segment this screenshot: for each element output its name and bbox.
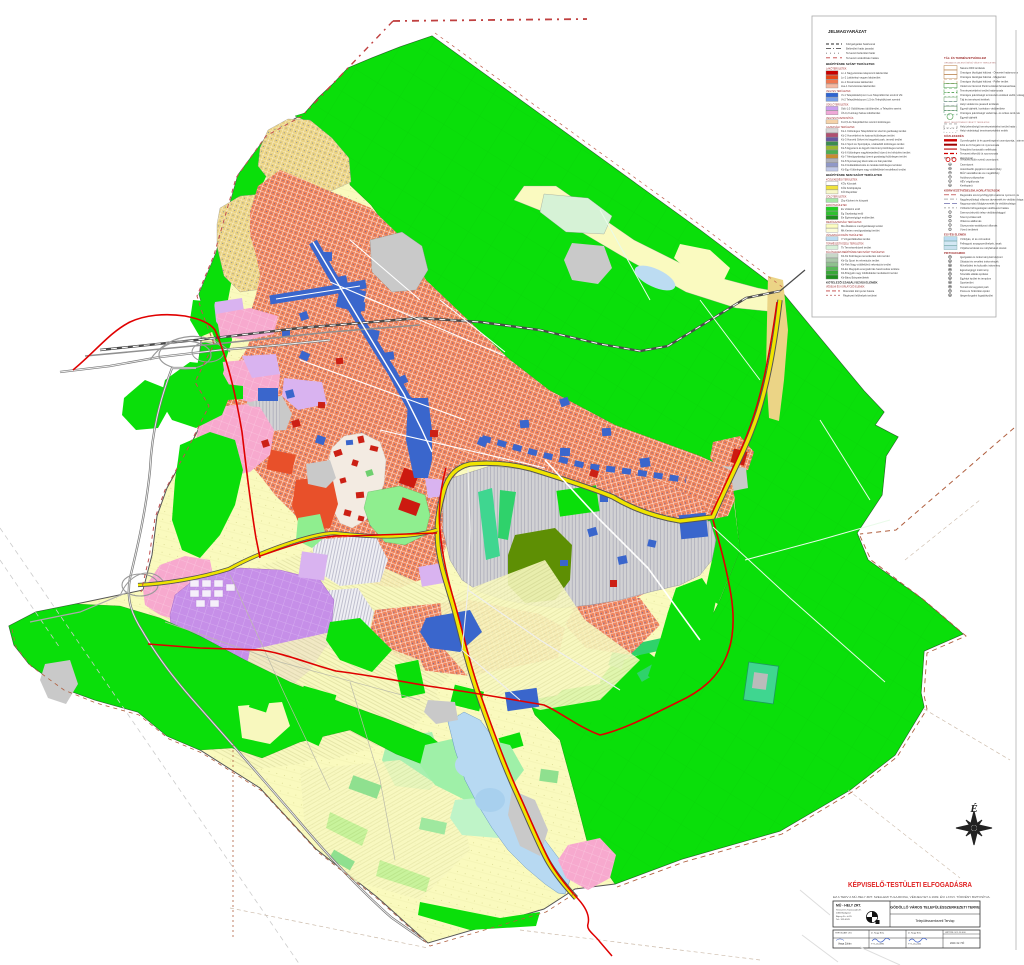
svg-text:TT 1-01-2421: TT 1-01-2421 xyxy=(908,944,922,946)
svg-text:Ee Egészségügyi erdőterület: Ee Egészségügyi erdőterület xyxy=(841,216,874,220)
svg-text:Temető és kegyeleti park: Temető és kegyeleti park xyxy=(960,285,989,289)
svg-text:Üdü-1,0 Üdülőházas üdülőterüle: Üdü-1,0 Üdülőházas üdülőterület, a Telep… xyxy=(841,107,901,111)
svg-text:VEGYES TERÜLETEK: VEGYES TERÜLETEK xyxy=(826,90,851,93)
svg-text:Vízjárta területek és mélyfekv: Vízjárta területek és mélyfekvésű részek xyxy=(960,246,1007,250)
svg-text:Má Általános mezőgazdasági ter: Má Általános mezőgazdasági terület xyxy=(841,224,883,228)
svg-text:EZ A TERV A MŰ-HELY ZRT. SZELL: EZ A TERV A MŰ-HELY ZRT. SZELLEMI TULAJD… xyxy=(833,894,991,899)
svg-text:Jelentősebb gépjármű várakozóh: Jelentősebb gépjármű várakozóhely xyxy=(960,167,1002,171)
svg-text:ZÖLDTERÜLETEK: ZÖLDTERÜLETEK xyxy=(826,195,847,198)
svg-text:Helyi védelemre javasolt terül: Helyi védelemre javasolt területek xyxy=(960,102,999,106)
svg-text:Vízbázis hidrogeológiai védőöv: Vízbázis hidrogeológiai védőövezet határ… xyxy=(960,206,1009,210)
svg-text:Egyedi tájérték: Egyedi tájérték xyxy=(960,116,978,120)
svg-text:Eg Gazdasági erdő: Eg Gazdasági erdő xyxy=(841,211,864,215)
svg-text:Varga Zoltán: Varga Zoltán xyxy=(838,943,852,946)
svg-text:KÖk Kötöttpályás: KÖk Kötöttpályás xyxy=(841,186,862,190)
svg-text:JELMAGYARÁZAT: JELMAGYARÁZAT xyxy=(828,29,867,34)
svg-text:Műemléki környezet határa: Műemléki környezet határa xyxy=(843,289,875,293)
svg-text:Tervezett belterületi határ: Tervezett belterületi határ xyxy=(846,51,875,55)
svg-text:Idegenforgalmi fogadóépület: Idegenforgalmi fogadóépület xyxy=(960,293,993,297)
svg-text:Kü-8 Nyersanyag kitermelés és: Kü-8 Nyersanyag kitermelés és bányaterül… xyxy=(841,159,892,163)
svg-text:KÖl Repülőtér: KÖl Repülőtér xyxy=(841,190,857,194)
svg-text:Természetvédelmi terület határ: Természetvédelmi terület határvonala xyxy=(960,89,1004,93)
svg-text:EGYÉB ELEMEK: EGYÉB ELEMEK xyxy=(944,232,966,237)
svg-text:ERDŐTERÜLETEK: ERDŐTERÜLETEK xyxy=(826,204,847,207)
svg-text:Ln-2 Lakótelepi vegyes lakóter: Ln-2 Lakótelepi vegyes lakóterület xyxy=(841,75,881,79)
svg-text:Kü-6 Különleges nagykiterjedés: Kü-6 Különleges nagykiterjedésű közmű és… xyxy=(841,150,911,154)
svg-text:LAKÓTERÜLETEK: LAKÓTERÜLETEK xyxy=(826,68,847,71)
svg-text:Tervezett elkerülő út nyomvona: Tervezett elkerülő út nyomvonala xyxy=(960,152,998,156)
svg-text:Tervező és Tanácsadó Zrt.: Tervező és Tanácsadó Zrt. xyxy=(836,909,862,912)
svg-text:Táji és természeti értékek: Táji és természeti értékek xyxy=(960,98,990,102)
svg-text:Szociális ellátás épületei: Szociális ellátás épületei xyxy=(960,272,989,276)
svg-text:Kt-0,5-ös Telepítőkörzet szeri: Kt-0,5-ös Telepítőkörzet szerinti különl… xyxy=(841,120,891,124)
svg-text:MÁV vasútállomás és megállóhel: MÁV vasútállomás és megállóhely xyxy=(960,171,1000,175)
svg-text:Kerékpárút: Kerékpárút xyxy=(960,184,973,188)
svg-text:Kü-5 Egyetemi és Egyéb intézmé: Kü-5 Egyetemi és Egyéb intézményi különl… xyxy=(841,146,904,150)
svg-text:Művelődési és kulturális intéz: Művelődési és kulturális intézmény xyxy=(960,264,1001,268)
svg-text:Kü-3 Honvéd Sírkert és kegyele: Kü-3 Honvéd Sírkert és kegyeleti park, t… xyxy=(841,138,902,142)
svg-text:Belterületi határ javaslat: Belterületi határ javaslat xyxy=(846,47,874,51)
svg-text:Szennyvíztisztító telep védőtá: Szennyvíztisztító telep védőtávolsággal xyxy=(960,211,1006,215)
svg-text:Nagynyomású földgázvezeték és: Nagynyomású földgázvezeték és védőtávols… xyxy=(960,202,1016,206)
svg-text:ÜDÜLŐTERÜLETEK: ÜDÜLŐTERÜLETEK xyxy=(826,104,849,107)
svg-text:Védett és Nemzeti Parki terüle: Védett és Nemzeti Parki területek felmar… xyxy=(960,84,1016,88)
svg-text:dr. Nagy Béla: dr. Nagy Béla xyxy=(908,932,922,935)
svg-text:É: É xyxy=(969,803,977,815)
svg-text:Kb-Sp Sport és rekreációs terü: Kb-Sp Sport és rekreációs terület xyxy=(841,258,879,262)
svg-text:Tel.: 312-4570: Tel.: 312-4570 xyxy=(836,919,851,921)
svg-text:MEZŐGAZDASÁGI TERÜLETEK: MEZŐGAZDASÁGI TERÜLETEK xyxy=(826,221,862,224)
svg-text:Szennyvízátemelő: Szennyvízátemelő xyxy=(960,215,982,219)
svg-text:KÜLÖNLEGES BEÉPÍTÉSRE NEM SZÁN: KÜLÖNLEGES BEÉPÍTÉSRE NEM SZÁNT TERÜLETE… xyxy=(826,251,885,254)
svg-text:Felhagyott anyagnyerőhelyek, t: Felhagyott anyagnyerőhelyek, tavak xyxy=(960,241,1002,245)
svg-text:BEÉPÍTÉSRE NEM SZÁNT TERÜLETEK: BEÉPÍTÉSRE NEM SZÁNT TERÜLETEK xyxy=(826,172,883,177)
svg-text:Vt-1 Településközpont 1-es Tel: Vt-1 Településközpont 1-es Telepítőkörze… xyxy=(841,93,903,97)
svg-text:Lke-1 Kertvárosias lakóterület: Lke-1 Kertvárosias lakóterület xyxy=(841,84,876,88)
svg-text:Vízfolyás, tó és vízmedrek: Vízfolyás, tó és vízmedrek xyxy=(960,237,991,241)
svg-text:Kb-B Egyéb nagy zöldfelülettel: Kb-B Egyéb nagy zöldfelülettel rendelkez… xyxy=(841,271,898,275)
svg-text:Régészeti lelőhelyek területei: Régészeti lelőhelyek területei xyxy=(843,293,877,297)
svg-text:Posta és hírközlési épület: Posta és hírközlési épület xyxy=(960,289,990,293)
svg-text:Autóbusz pályaudvar: Autóbusz pályaudvar xyxy=(960,175,984,179)
svg-text:Natura 2000 területek: Natura 2000 területek xyxy=(960,66,986,70)
svg-text:KÖZLEKEDÉS: KÖZLEKEDÉS xyxy=(944,133,964,138)
svg-text:Kü-7 Mezőgazdasági üzemi gazda: Kü-7 Mezőgazdasági üzemi gazdasági külön… xyxy=(841,155,907,159)
svg-text:Ln-1 Nagyvárosias telepszerű l: Ln-1 Nagyvárosias telepszerű lakóterület xyxy=(841,71,888,75)
svg-text:Villamos alállomás: Villamos alállomás xyxy=(960,219,982,223)
svg-text:Települési fontosabb mellékuta: Települési fontosabb mellékutak xyxy=(960,147,997,151)
svg-text:Csomópont: Csomópont xyxy=(960,163,974,167)
svg-text:Oktatási és nevelési intézmény: Oktatási és nevelési intézmények xyxy=(960,259,999,263)
svg-text:Országos jelentőségű védett lá: Országos jelentőségű védett láp- és szik… xyxy=(960,111,1021,115)
svg-text:Ev Védelmi erdő: Ev Védelmi erdő xyxy=(841,207,861,211)
svg-text:Helyi védettségű természetvéde: Helyi védettségű természetvédelmi emlék xyxy=(960,129,1009,133)
svg-text:Tervezett külön szintű csomópo: Tervezett külön szintű csomópont xyxy=(960,158,999,162)
svg-text:KÖRNYEZETVÉDELEM, KORLÁTOZÁSOK: KÖRNYEZETVÉDELEM, KORLÁTOZÁSOK xyxy=(944,188,1000,193)
svg-text:Országos ökológiai hálózat - P: Országos ökológiai hálózat - Puffer terü… xyxy=(960,80,1009,84)
svg-text:TERVSZÁM: 281: TERVSZÁM: 281 xyxy=(835,932,853,935)
svg-text:GÖDÖLLŐ VÁROS TELEPÜLÉSSZERKEZ: GÖDÖLLŐ VÁROS TELEPÜLÉSSZERKEZETI TERVE xyxy=(890,905,980,910)
svg-text:VÉDELMI ÉS KORLÁTOZÓ ELEMEK: VÉDELMI ÉS KORLÁTOZÓ ELEMEK xyxy=(826,286,865,289)
svg-text:GAZDASÁGI TERÜLETEK: GAZDASÁGI TERÜLETEK xyxy=(826,126,855,129)
svg-text:Vt-2 Településközpont 1,5-ös T: Vt-2 Településközpont 1,5-ös Telepítőkör… xyxy=(841,98,901,102)
svg-text:Zkp Közkert és közpark: Zkp Közkert és közpark xyxy=(841,199,869,203)
svg-text:KÖZLEKEDÉSI TERÜLETEK: KÖZLEKEDÉSI TERÜLETEK xyxy=(826,178,858,181)
svg-text:Nagyfeszültségű villamos távve: Nagyfeszültségű villamos távvezeték és v… xyxy=(960,197,1024,201)
svg-text:Országos jelentőségű természet: Országos jelentőségű természeti emlékek … xyxy=(960,93,1024,97)
svg-text:KÖTELEZŐ SZABÁLYOZÁSI ELEMEK: KÖTELEZŐ SZABÁLYOZÁSI ELEMEK xyxy=(826,280,879,285)
svg-text:Kb-Rek Nagy zöldfelületű rekre: Kb-Rek Nagy zöldfelületű rekreációs terü… xyxy=(841,263,891,267)
svg-text:BEÉPÍTÉSRE SZÁNT TERÜLETEK: BEÉPÍTÉSRE SZÁNT TERÜLETEK xyxy=(826,61,876,66)
svg-text:Igazgatási és önkormányzati kö: Igazgatási és önkormányzati központ xyxy=(960,255,1003,259)
svg-text:ORSZÁGOS JELENTŐSÉGŰ VÉDETT TE: ORSZÁGOS JELENTŐSÉGŰ VÉDETT TERÜLETEK xyxy=(944,62,996,65)
svg-text:Tk Természetközeli terület: Tk Természetközeli terület xyxy=(841,246,871,250)
svg-text:Országos ökológiai hálózat - Ö: Országos ökológiai hálózat - Övezetei ha… xyxy=(960,71,1019,75)
svg-text:Egyházi épület és templom: Egyházi épület és templom xyxy=(960,276,991,280)
svg-text:KÖu Közutak: KÖu Közutak xyxy=(841,182,857,186)
svg-text:LÉPTÉK: M 1:16 000: LÉPTÉK: M 1:16 000 xyxy=(945,931,966,934)
svg-text:Lk-1 Kisvárosias lakóterület: Lk-1 Kisvárosias lakóterület xyxy=(841,80,873,84)
svg-text:Országos ökológiai hálózat - M: Országos ökológiai hálózat - Magterület xyxy=(960,75,1006,79)
svg-text:VÍZGAZDÁLKODÁSI TERÜLETEK: VÍZGAZDÁLKODÁSI TERÜLETEK xyxy=(826,234,863,237)
svg-text:2020. 02. HÓ: 2020. 02. HÓ xyxy=(950,942,964,945)
svg-text:PIKTOGRAMOK: PIKTOGRAMOK xyxy=(944,251,965,255)
svg-text:TERMÉSZETKÖZELI TERÜLETEK: TERMÉSZETKÖZELI TERÜLETEK xyxy=(826,242,864,245)
svg-text:Kb-Kk Különleges temetkezési c: Kb-Kk Különleges temetkezési célú terüle… xyxy=(841,254,890,258)
svg-text:Vízmű területek: Vízmű területek xyxy=(960,228,979,232)
svg-text:Kb-En Megújuló energiaforrás h: Kb-En Megújuló energiaforrás hasznosítás… xyxy=(841,267,900,271)
svg-text:Egészségügyi intézmény: Egészségügyi intézmény xyxy=(960,268,989,272)
svg-text:dr. Nagy Béla: dr. Nagy Béla xyxy=(871,932,885,935)
svg-text:Főút és fő forgalmi út nyomvon: Főút és fő forgalmi út nyomvonala xyxy=(960,143,1000,147)
svg-text:TT 1-01-0891: TT 1-01-0891 xyxy=(871,944,885,946)
svg-text:Bajcsy Zs. út 31.: Bajcsy Zs. út 31. xyxy=(836,915,853,918)
svg-text:Kü-4 Sport és Sportpálya, szab: Kü-4 Sport és Sportpálya, szabadidő külö… xyxy=(841,142,905,146)
svg-text:Helyi jelentőségű természetvéd: Helyi jelentőségű természetvédelmi terül… xyxy=(960,124,1017,128)
svg-text:Üh-0,2 Hétvégi házas üdülőterü: Üh-0,2 Hétvégi házas üdülőterület xyxy=(841,111,880,115)
svg-text:Kü-1 Különleges Telepítőkörzet: Kü-1 Különleges Telepítőkörzet szerinti … xyxy=(841,129,907,133)
svg-text:KÉPVISELŐ-TESTÜLETI ELFOGADÁSR: KÉPVISELŐ-TESTÜLETI ELFOGADÁSRA xyxy=(848,880,972,889)
svg-text:Egyedi tájérték, kunhalom védő: Egyedi tájérték, kunhalom védőterülete xyxy=(960,107,1005,111)
svg-text:Tervezett véderdősáv határa: Tervezett véderdősáv határa xyxy=(846,56,879,60)
svg-text:Kü-Egy Különleges nagy zöldfel: Kü-Egy Különleges nagy zöldfelülettel re… xyxy=(841,167,906,171)
svg-text:Kü-2 Honvédelmi és katonai kül: Kü-2 Honvédelmi és katonai különleges te… xyxy=(841,133,895,137)
svg-text:Kü-9 Hulladékkezelés és leraká: Kü-9 Hulladékkezelés és lerakás különleg… xyxy=(841,163,902,167)
svg-text:TÁJ- ÉS TERMÉSZETVÉDELEM: TÁJ- ÉS TERMÉSZETVÉDELEM xyxy=(944,55,987,60)
svg-text:Sportterület: Sportterület xyxy=(960,281,974,285)
svg-text:Kb-Bány Bányaterületek: Kb-Bány Bányaterületek xyxy=(841,275,870,279)
svg-text:VEGYES HASZNOSÍTÁS: VEGYES HASZNOSÍTÁS xyxy=(826,117,854,120)
svg-text:Településszerkezeti Tervlap: Településszerkezeti Tervlap xyxy=(916,919,955,923)
svg-text:1065 Budapest: 1065 Budapest xyxy=(836,912,851,915)
svg-text:Mk Kertes mezőgazdasági terüle: Mk Kertes mezőgazdasági terület xyxy=(841,229,880,233)
svg-text:Gáznyomás-szabályozó állomás: Gáznyomás-szabályozó állomás xyxy=(960,223,998,227)
svg-text:Regionális szennyvízfőgyűjtő c: Regionális szennyvízfőgyűjtő csatorna ny… xyxy=(960,193,1019,197)
svg-text:V Vízgazdálkodási terület: V Vízgazdálkodási terület xyxy=(841,237,871,241)
svg-text:Közigazgatási határvonal: Közigazgatási határvonal xyxy=(846,42,875,46)
svg-text:Gyorsforgalmi út és gyorsforga: Gyorsforgalmi út és gyorsforgalmi csomóp… xyxy=(960,139,1024,143)
svg-text:MŰ - HELY ZRT.: MŰ - HELY ZRT. xyxy=(836,903,861,908)
